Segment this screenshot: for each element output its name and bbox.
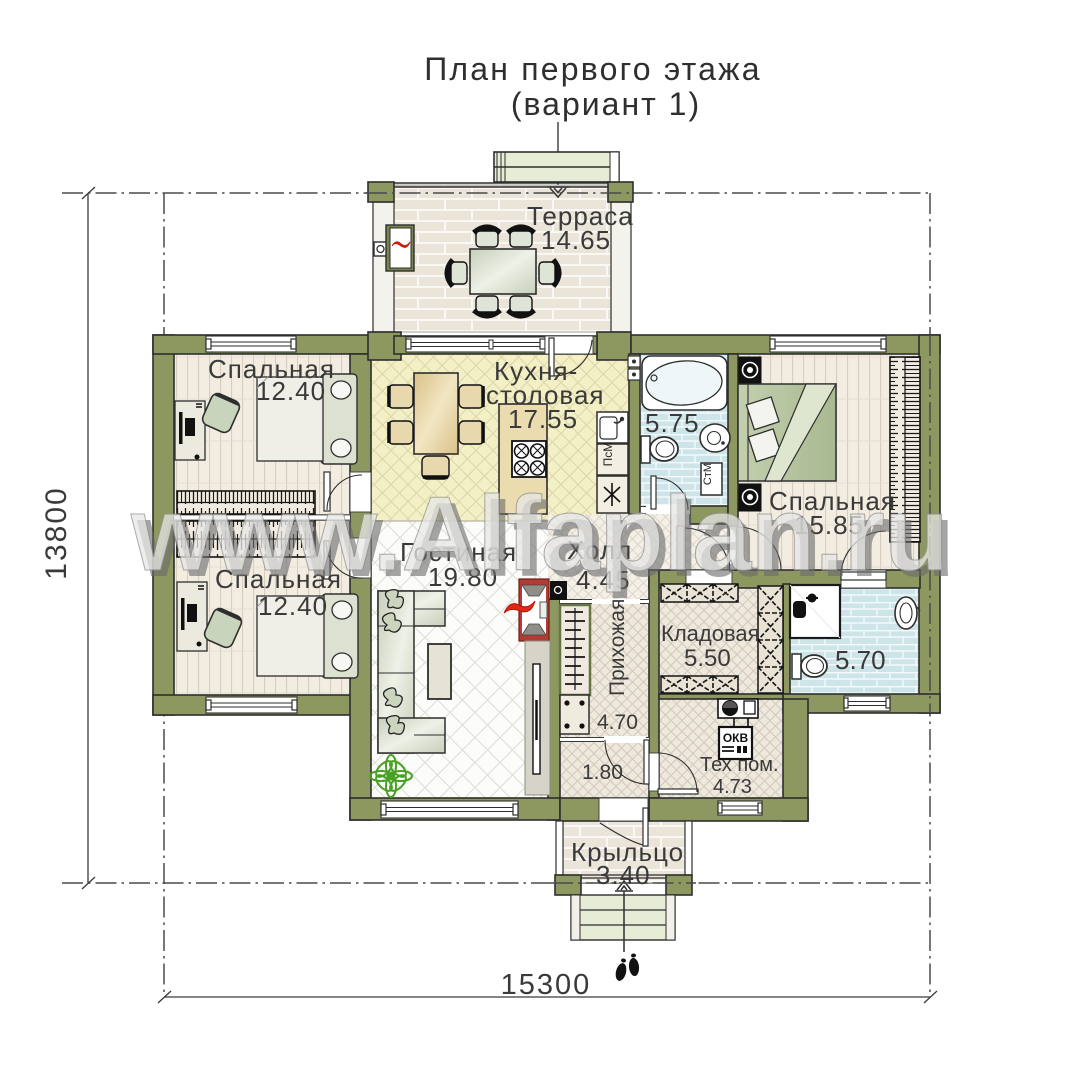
svg-text:Кладовая: Кладовая — [661, 621, 760, 646]
svg-text:5.75: 5.75 — [645, 408, 700, 438]
svg-text:ПсМ: ПсМ — [601, 442, 615, 467]
svg-text:12.40: 12.40 — [256, 376, 326, 406]
svg-text:5.50: 5.50 — [684, 645, 731, 672]
svg-text:(вариант 1): (вариант 1) — [511, 86, 701, 122]
svg-text:Тех пом.: Тех пом. — [700, 754, 779, 776]
svg-text:5.70: 5.70 — [835, 645, 886, 675]
svg-text:План первого этажа: План первого этажа — [424, 51, 762, 87]
svg-text:4.73: 4.73 — [713, 776, 752, 798]
svg-text:1.80: 1.80 — [582, 761, 623, 784]
svg-text:ОКВ: ОКВ — [723, 731, 749, 745]
svg-text:14.65: 14.65 — [541, 225, 611, 255]
svg-text:15300: 15300 — [501, 969, 592, 1001]
svg-text:Прихожая: Прихожая — [606, 599, 629, 696]
svg-text:17.55: 17.55 — [508, 404, 578, 434]
svg-text:4.70: 4.70 — [597, 711, 638, 734]
svg-text:13800: 13800 — [40, 486, 73, 579]
svg-text:3.40: 3.40 — [596, 860, 651, 890]
svg-text:www.Alfaplan.ru: www.Alfaplan.ru — [130, 475, 949, 593]
